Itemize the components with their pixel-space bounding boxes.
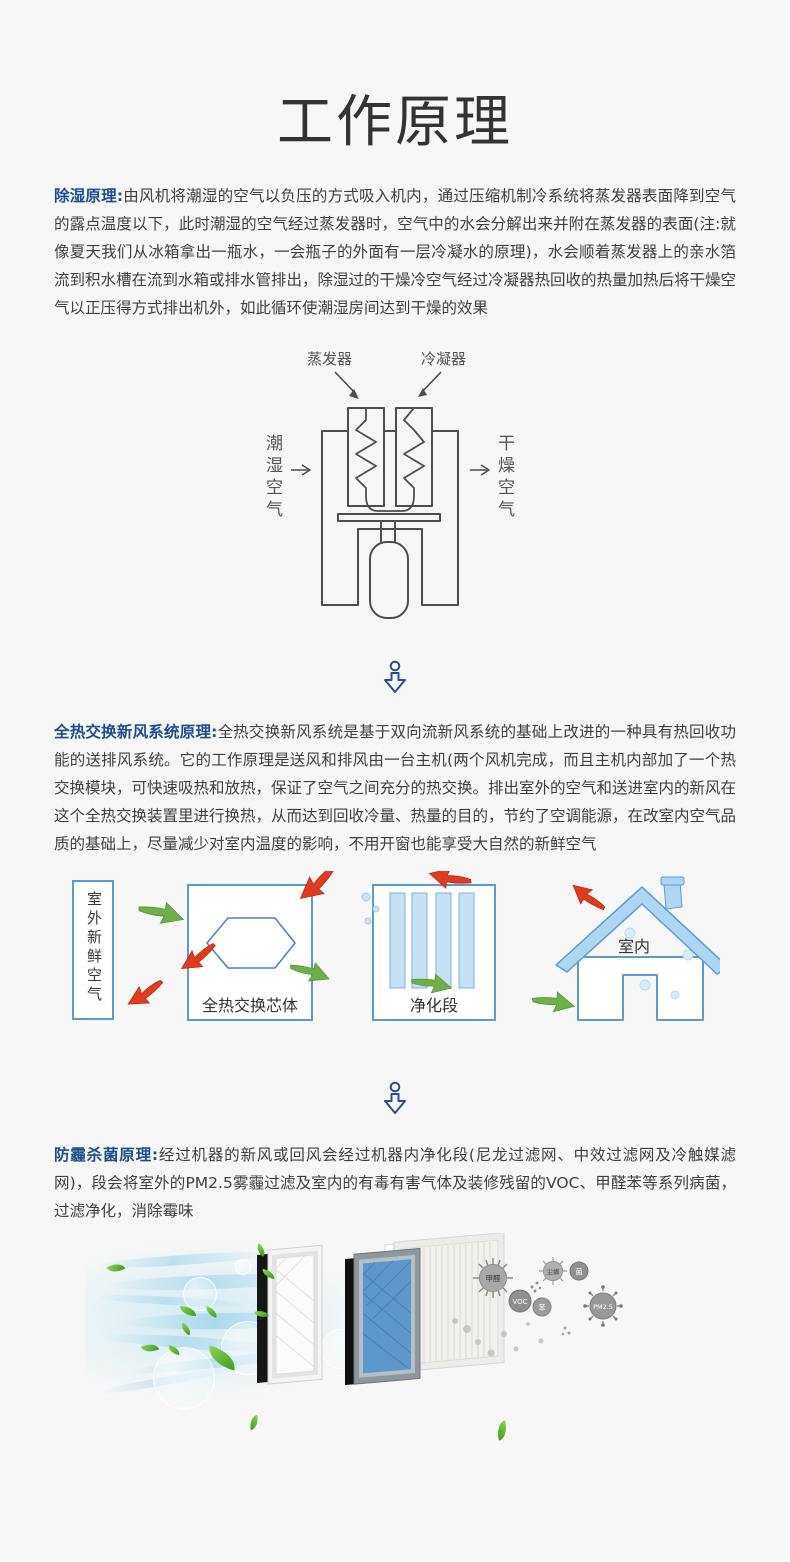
svg-text:甲醛: 甲醛: [486, 1273, 501, 1283]
anti-haze-principle-paragraph: 防霾杀菌原理:经过机器的新风或回风会经过机器内净化段(尼龙过滤网、中效过滤网及冷…: [54, 1141, 736, 1225]
filter-panels-drawing: 甲醛 VOC 苯 尘螨 菌: [95, 1233, 695, 1465]
down-arrow-icon: [380, 1081, 410, 1123]
working-principle-page: { "title": "工作原理", "sections": [ { "labe…: [0, 88, 790, 1562]
heat-exchange-principle-body: 全热交换新风系统是基于双向流新风系统的基础上改进的一种具有热回收功能的送排风系统…: [54, 723, 736, 853]
heat-exchange-diagram: 室外新鲜空气 全热交换芯体 净化段 室内: [70, 871, 720, 1023]
dehumidify-principle-label: 除湿原理:: [54, 187, 123, 205]
svg-text:VOC: VOC: [512, 1298, 527, 1306]
page-title: 工作原理: [0, 88, 790, 158]
dry-air-label: 干燥空气: [495, 434, 513, 522]
anti-haze-principle-label: 防霾杀菌原理:: [54, 1146, 158, 1164]
heat-exchange-principle-label: 全热交换新风系统原理:: [54, 723, 217, 741]
svg-text:PM2.5: PM2.5: [593, 1303, 613, 1311]
pointer-head: [349, 389, 359, 399]
svg-text:尘螨: 尘螨: [547, 1267, 561, 1276]
dehumidify-diagram: 蒸发器 冷凝器 潮湿空气 干燥空气: [255, 346, 535, 628]
svg-text:菌: 菌: [576, 1267, 583, 1276]
filter-illustration: 甲醛 VOC 苯 尘螨 菌: [95, 1233, 695, 1465]
down-arrow-icon: [380, 660, 410, 702]
voc-particle: VOC: [509, 1290, 531, 1312]
benzene-particle: 苯: [533, 1298, 551, 1316]
svg-text:苯: 苯: [539, 1303, 546, 1312]
core-label: 全热交换芯体: [188, 992, 312, 1016]
dehumidify-principle-paragraph: 除湿原理:由风机将潮湿的空气以负压的方式吸入机内，通过压缩机制冷系统将蒸发器表面…: [54, 182, 736, 322]
outdoor-air-label: 室外新鲜空气: [84, 891, 105, 1005]
house-icon: [578, 957, 703, 1020]
fan-plate: [338, 514, 440, 521]
condenser-label: 冷凝器: [421, 348, 466, 369]
compressor-tank: [370, 542, 408, 618]
humid-air-label: 潮湿空气: [263, 434, 281, 522]
heat-exchange-principle-paragraph: 全热交换新风系统原理:全热交换新风系统是基于双向流新风系统的基础上改进的一种具有…: [54, 718, 736, 858]
dust-mite-particle: 尘螨: [539, 1257, 567, 1285]
formaldehyde-particle: 甲醛: [473, 1258, 513, 1298]
purify-label: 净化段: [373, 992, 495, 1016]
machine-schematic-drawing: [255, 346, 535, 628]
pointer-head: [418, 388, 427, 397]
filter-panel-medium: [345, 1248, 420, 1385]
dehumidify-principle-body: 由风机将潮湿的空气以负压的方式吸入机内，通过压缩机制冷系统将蒸发器表面降到空气的…: [54, 187, 736, 317]
bacteria-particle: 菌: [570, 1262, 588, 1280]
evaporator-label: 蒸发器: [307, 348, 352, 369]
indoor-label: 室内: [618, 933, 650, 957]
pm25-particle: PM2.5: [583, 1285, 623, 1327]
